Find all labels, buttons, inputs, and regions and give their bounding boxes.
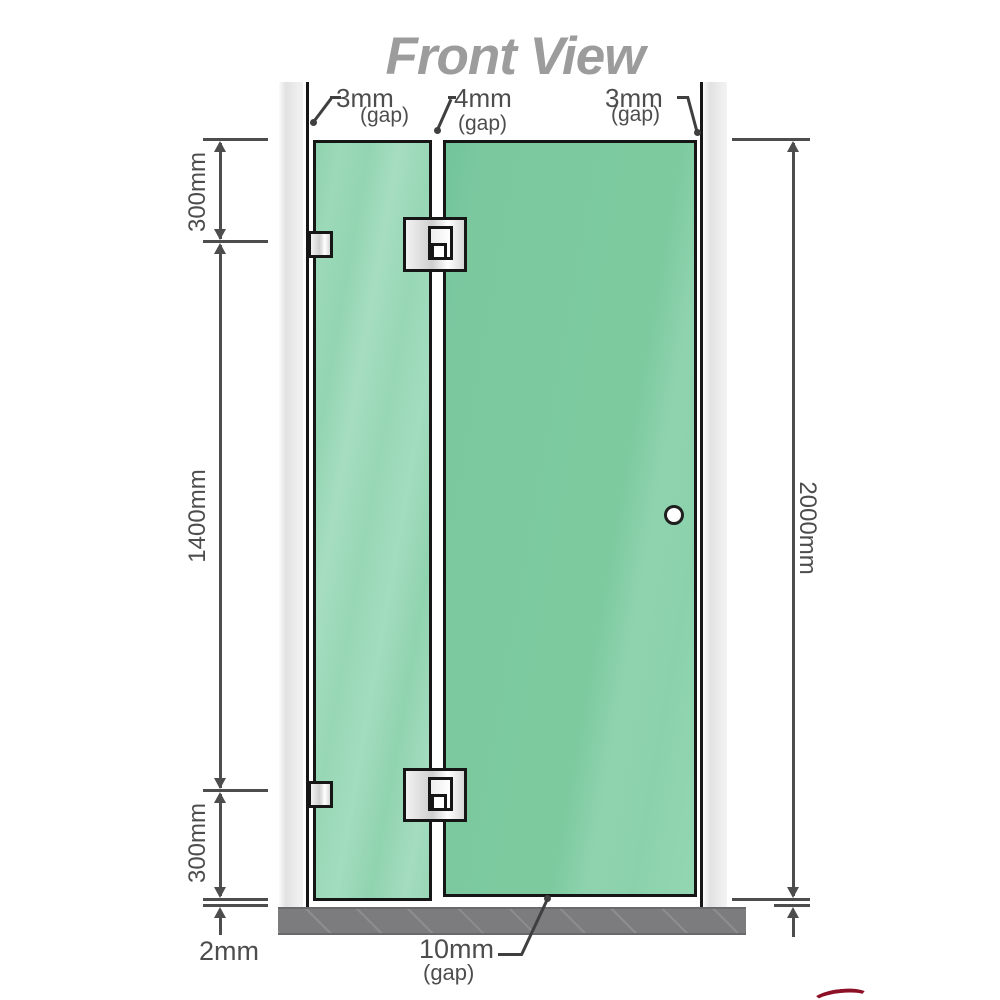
arrowhead-down-icon (214, 778, 226, 789)
tick-1400-bottom (203, 789, 268, 792)
floor-base (278, 907, 746, 935)
dim-line-1400 (219, 245, 222, 788)
arrowhead-down-icon (214, 229, 226, 240)
right-wall-edge-line (700, 82, 703, 907)
tick-300-top-bottom (203, 240, 268, 243)
bottom-hinge (403, 768, 467, 822)
top-hinge (403, 217, 467, 272)
left-wall-channel (279, 82, 303, 907)
bottom-wall-bracket (308, 781, 333, 808)
top-hinge-notch (431, 243, 447, 260)
tick-glass-top-left (203, 138, 268, 141)
arrowhead-up-icon (214, 792, 226, 803)
arrowhead-down-icon (787, 887, 799, 898)
top-wall-bracket (308, 231, 333, 258)
gap-label-middle-qualifier: (gap) (458, 112, 507, 136)
leader-middle-diagonal (436, 99, 452, 131)
arrowhead-up-icon (214, 243, 226, 254)
pointer-line-2mm (219, 917, 222, 935)
bottom-hinge-notch (431, 794, 447, 811)
leader-bottom-horizontal (498, 953, 522, 956)
door-glass-panel (443, 140, 697, 897)
diagram-title: Front View (340, 26, 690, 82)
leader-bottom-dot (544, 895, 551, 902)
front-view-diagram: Front View 300mm 1400mm 300mm 2mm (0, 0, 1000, 1000)
arrowhead-down-icon (214, 887, 226, 898)
leader-right-diagonal (687, 97, 699, 132)
arrowhead-up-icon (214, 141, 226, 152)
gap-label-left-qualifier: (gap) (360, 104, 409, 128)
leader-left-dot (310, 119, 317, 126)
leader-middle-dot (434, 127, 441, 134)
dim-line-300-bottom (219, 794, 222, 896)
leader-right-dot (694, 129, 701, 136)
pointer-line-right (792, 917, 795, 937)
logo-swoosh-icon (811, 986, 871, 1000)
tick-glass-bottom-right (732, 898, 810, 901)
gap-label-right-qualifier: (gap) (611, 103, 660, 127)
gap-label-middle-value: 4mm (454, 83, 512, 114)
tick-floor-top-left (203, 904, 268, 907)
gap-label-bottom-qualifier: (gap) (423, 960, 474, 986)
door-knob (664, 505, 684, 525)
arrowhead-up-icon (787, 141, 799, 152)
tick-glass-bottom-left (203, 898, 268, 901)
label-2mm: 2mm (199, 936, 259, 967)
dim-line-300-top (219, 143, 222, 239)
right-wall-channel (703, 82, 727, 907)
